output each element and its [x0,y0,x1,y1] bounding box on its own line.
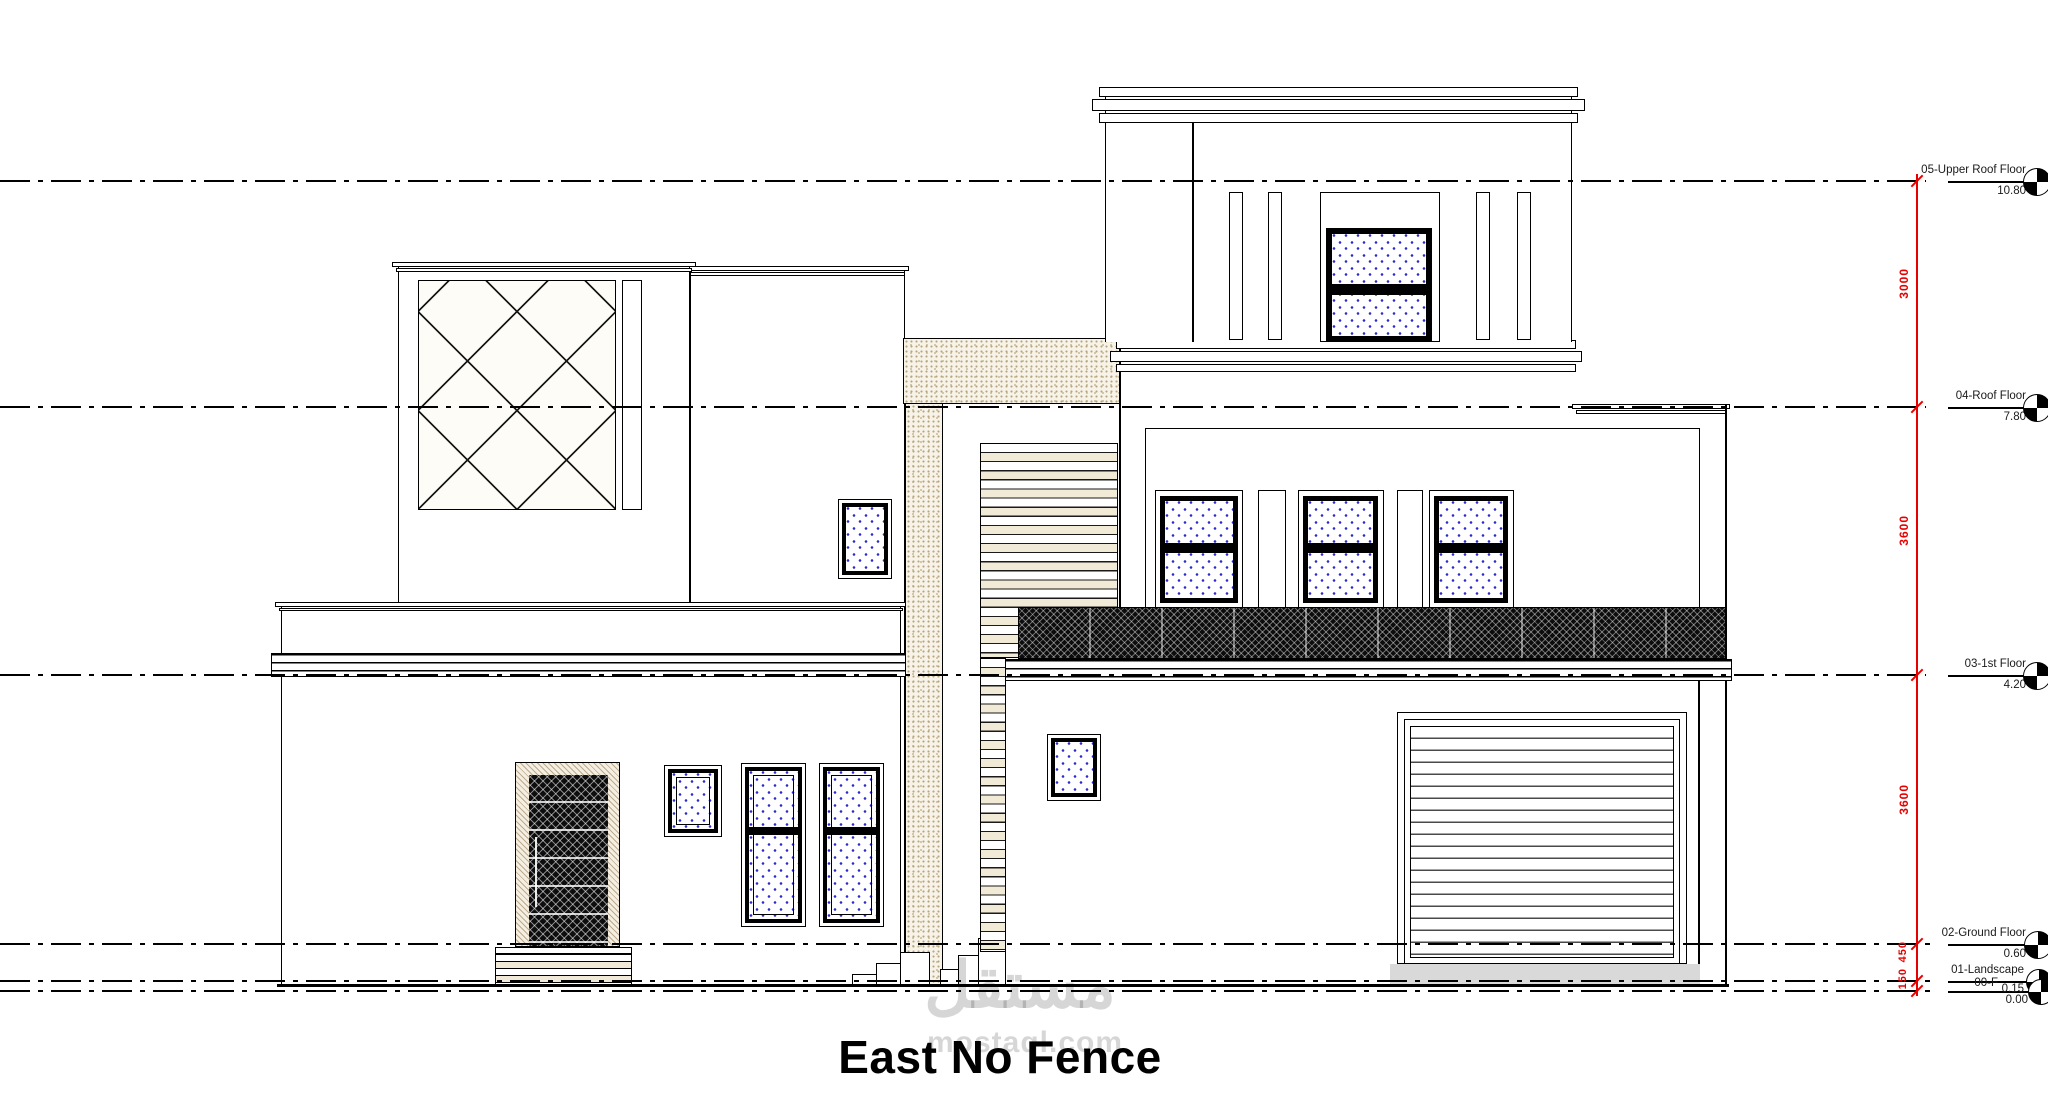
tower-pilaster-3 [1476,192,1490,340]
garage-roller-shutter [1410,726,1674,958]
stair-screen-pier [905,404,943,986]
left-wing-parapet [275,602,907,607]
level-value-first-floor: 4.20 [2004,679,2026,691]
tower-cap-mid [1092,99,1585,111]
lattice-block-cap-inner [396,268,692,272]
dimension-text-3000: 3000 [1897,268,1911,299]
dimension-text-3600-upper: 3600 [1897,515,1911,546]
dimension-text-150: 150 [1897,968,1909,989]
right-parapet-cap-inner [1576,410,1726,414]
entrance-door-panel [529,775,608,946]
door-plinth-cap [495,947,632,954]
level-value-ground-floor: 0.60 [2004,948,2026,960]
level-marker-ground-floor-icon [2024,931,2048,959]
right-pier-edge [1698,660,1700,986]
lattice-block-cap [392,262,696,267]
stair-hall-cap [686,266,909,271]
tower-cap-bottom [1099,113,1578,123]
level-tail-roof [1948,407,2028,409]
first-floor-cornice [995,659,1732,681]
level-line-roof [0,406,1926,408]
level-label-upper-roof: 05-Upper Roof Floor [1921,164,2026,176]
door-handle [535,837,537,907]
watermark-latin: mostaql.com [885,1026,1165,1060]
dimension-text-450: 450 [1897,941,1909,962]
tall-window-2-inner-line [831,775,872,915]
square-window-inner-line [676,777,710,825]
level-line-ground-floor [0,943,1930,945]
tall-window-2-transom [823,827,880,835]
mid-window-3-transom [1434,543,1508,553]
level-marker-roof-icon [2023,394,2048,422]
tower-seam [1192,123,1194,342]
tower-pilaster-2 [1268,192,1282,340]
left-wing-parapet-inner [279,608,903,611]
level-line-upper-roof [0,180,1926,182]
level-value-zero: 0.00 [2006,994,2028,1006]
level-label-zero: 00-F [1974,977,1998,989]
stair-window [842,503,888,575]
lattice-pilaster [622,280,642,510]
mid-window-2-transom [1303,543,1378,553]
tower-base-cornice-b [1110,351,1582,362]
tower-pilaster-4 [1517,192,1531,340]
tall-window-1-inner-line [753,775,794,915]
watermark-arabic: مستقل [870,948,1170,1023]
level-line-first-floor [0,674,1926,676]
mid-pilaster-1 [1258,490,1286,608]
level-value-roof: 7.80 [2004,411,2026,423]
dimension-line [1916,174,1918,996]
elevation-drawing: 3000 3600 3600 450 150 05-Upper Roof Flo… [0,0,2048,1094]
level-marker-first-floor-icon [2023,662,2048,690]
building-right-edge [1725,404,1727,986]
level-label-roof: 04-Roof Floor [1956,390,2026,402]
level-marker-zero-icon [2028,979,2048,1005]
level-tail-first-floor [1948,675,2028,677]
level-tail-upper-roof [1948,181,2028,183]
balcony-railing [1018,607,1726,659]
stair-screen-top-band [903,338,1120,404]
tower-window-transom [1326,284,1432,295]
mid-window-1-transom [1160,543,1238,553]
stair-hall-cap-inner [690,272,905,276]
tower-pilaster-1 [1229,192,1243,340]
level-tail-ground-floor [1948,944,2030,946]
level-label-first-floor: 03-1st Floor [1965,658,2026,670]
level-value-upper-roof: 10.80 [1997,185,2026,197]
ground-window [1051,738,1097,797]
stair-louver-strip [980,658,1006,952]
tower-cap-top [1099,87,1578,97]
level-label-ground-floor: 02-Ground Floor [1942,927,2026,939]
mid-pilaster-2 [1397,490,1423,608]
lattice-panel [418,280,616,510]
level-marker-upper-roof-icon [2023,168,2048,196]
tall-window-1-transom [745,827,802,835]
tower-base-cornice-c [1116,364,1576,372]
level-label-landscape: 01-Landscape [1951,964,2024,976]
dimension-text-3600-lower: 3600 [1897,784,1911,815]
